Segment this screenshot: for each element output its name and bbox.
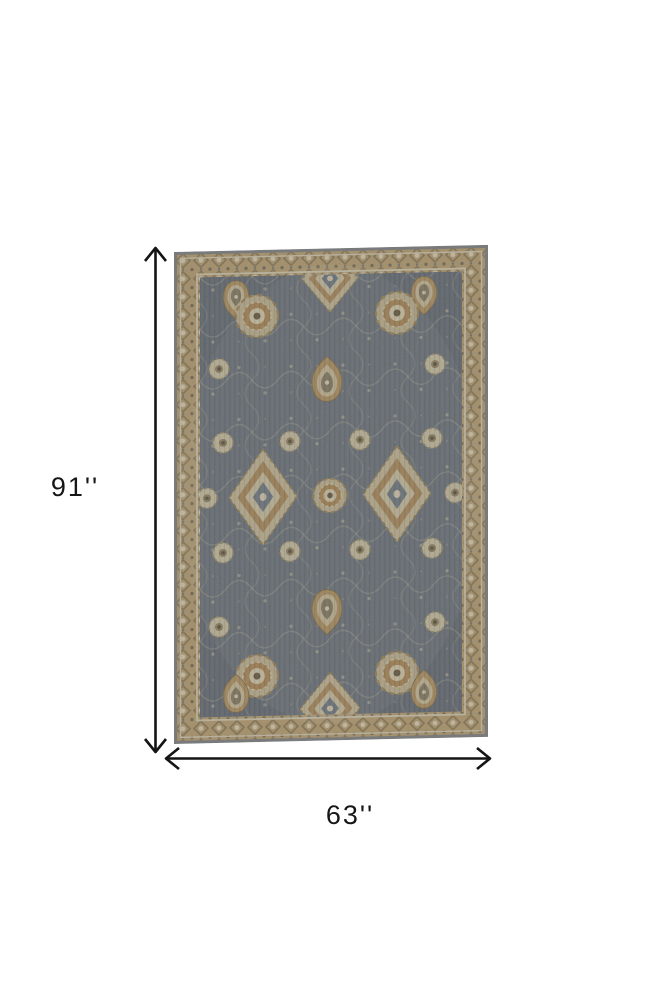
width-dimension-arrow [166, 748, 490, 769]
width-label: 63'' [310, 802, 390, 829]
rug-photo [174, 245, 488, 744]
rug-image [174, 245, 488, 744]
product-dimension-diagram: 91'' 63'' [0, 0, 657, 1000]
rug-texture [174, 245, 488, 744]
height-dimension-arrow [145, 248, 166, 752]
height-label: 91'' [35, 474, 115, 501]
